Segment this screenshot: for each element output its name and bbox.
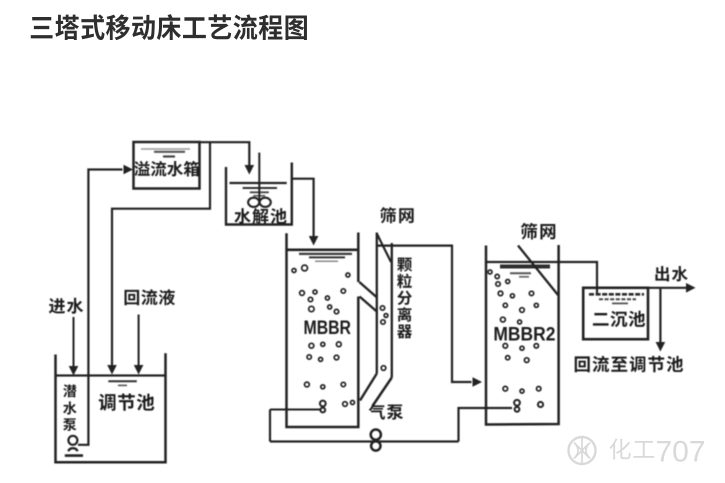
svg-text:MBBR: MBBR — [304, 318, 352, 339]
svg-text:707: 707 — [656, 436, 706, 469]
svg-text:MBBR2: MBBR2 — [493, 325, 555, 346]
